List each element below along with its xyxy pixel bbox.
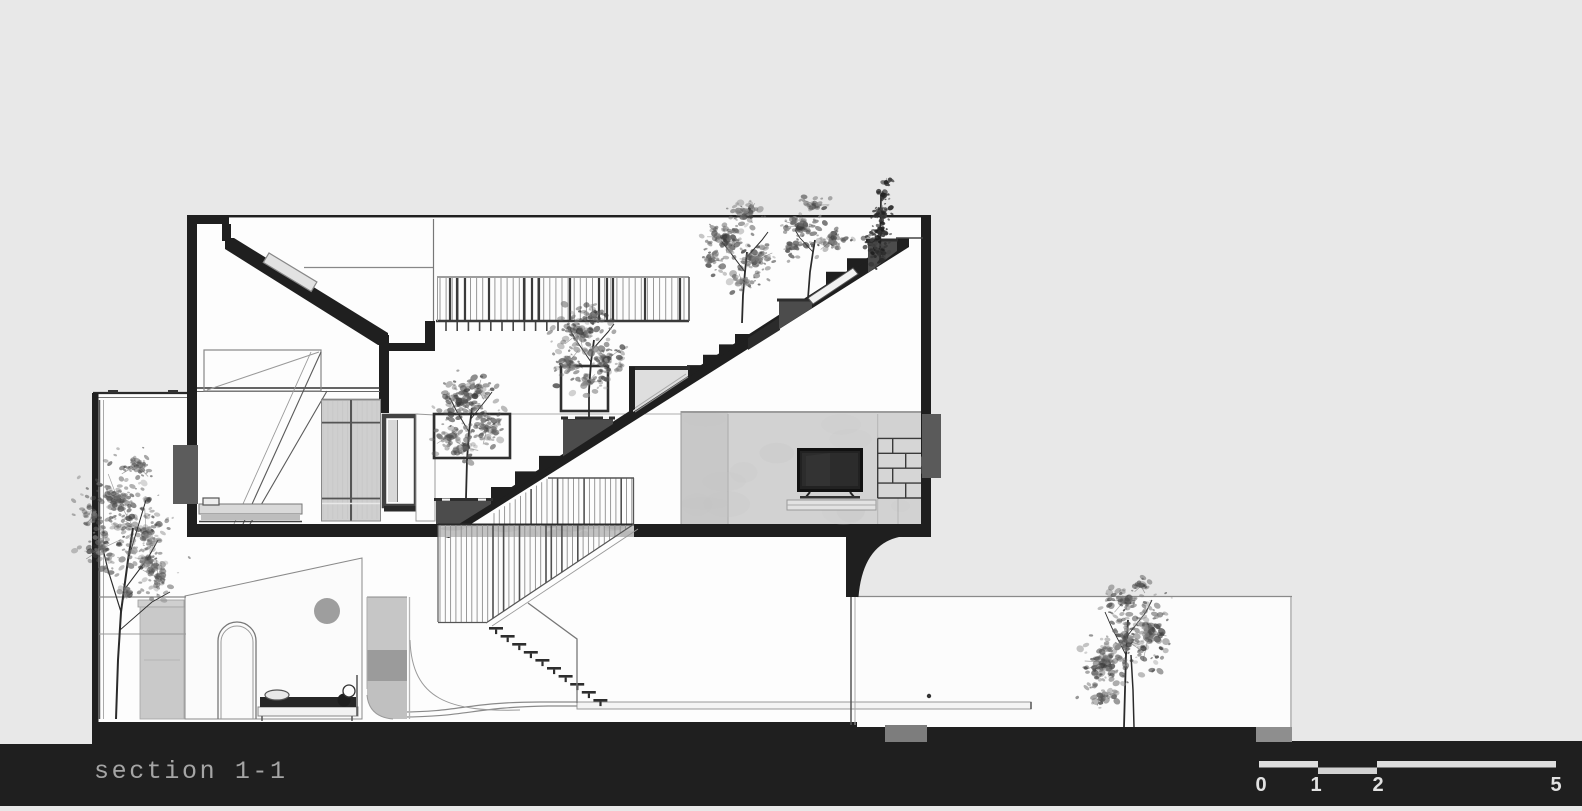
svg-text:5: 5 (1550, 774, 1561, 796)
svg-text:section 1-1: section 1-1 (94, 757, 288, 786)
svg-text:1: 1 (1310, 774, 1321, 796)
svg-text:0: 0 (1255, 774, 1266, 796)
svg-text:2: 2 (1372, 774, 1383, 796)
